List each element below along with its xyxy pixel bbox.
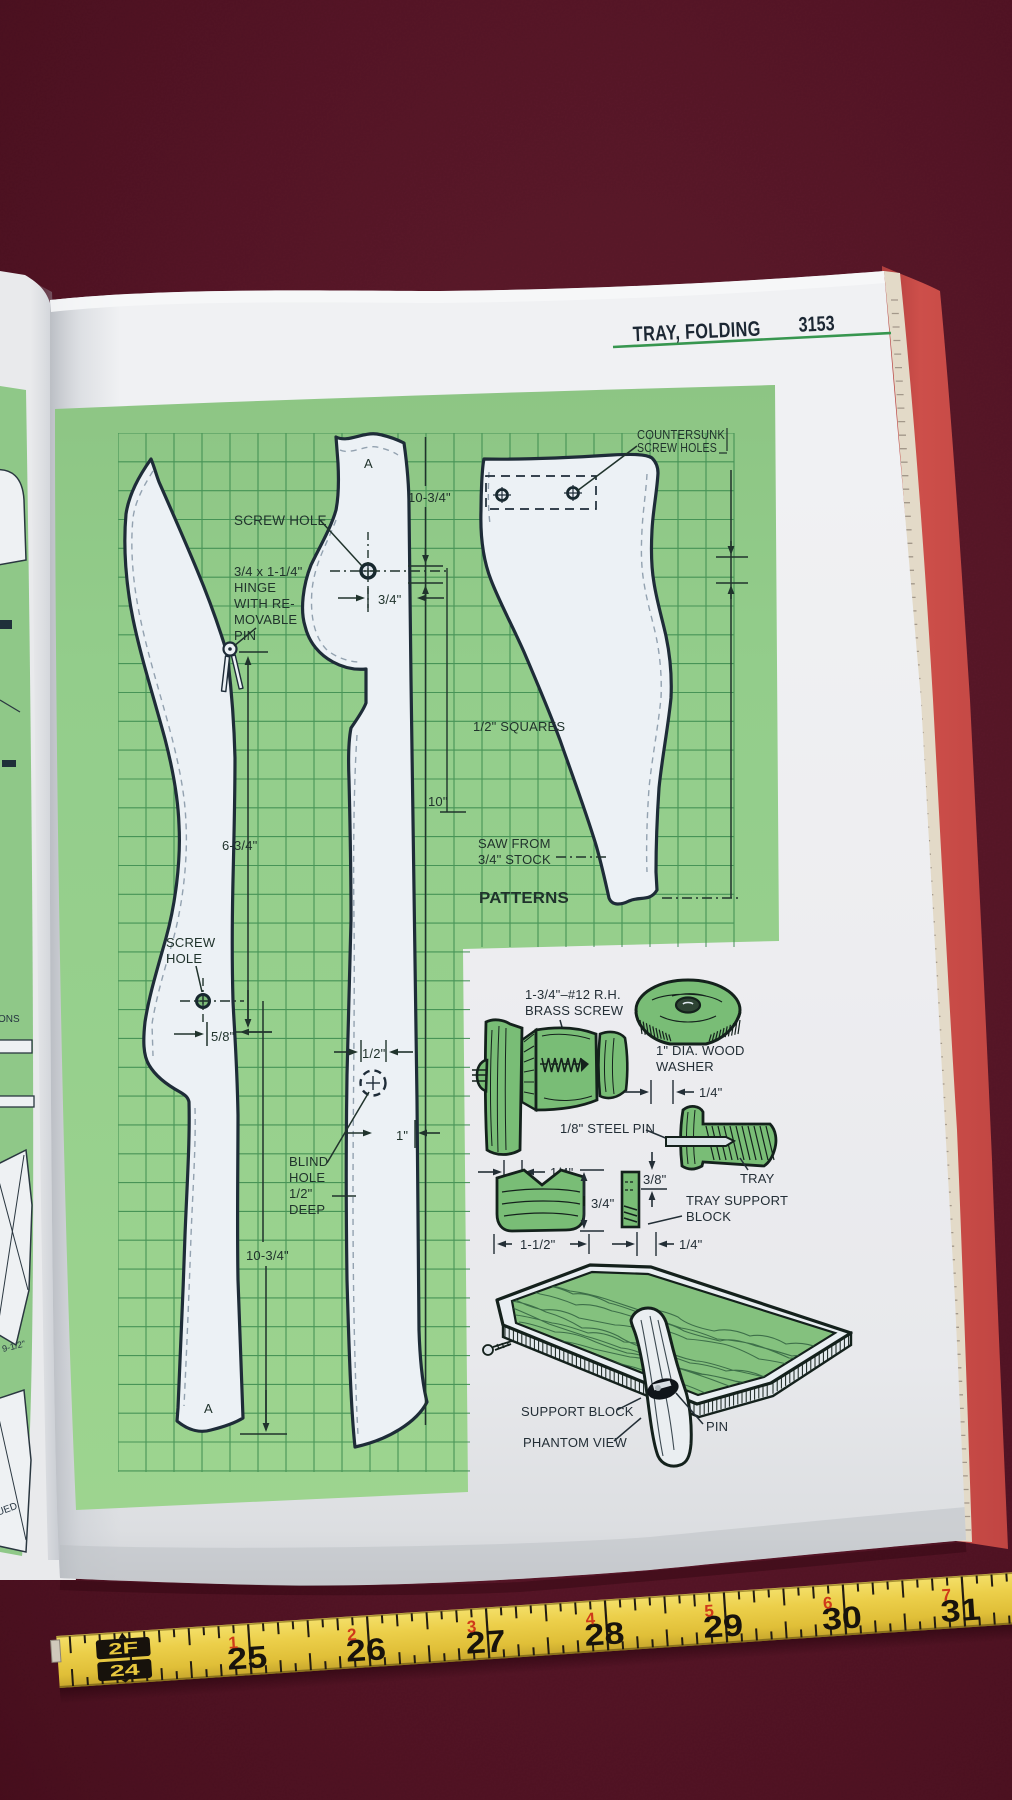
svg-text:A: A [364, 456, 373, 471]
svg-text:4: 4 [585, 1609, 596, 1629]
svg-text:COUNTERSUNK: COUNTERSUNK [637, 428, 725, 442]
svg-text:3/4": 3/4" [378, 592, 402, 607]
svg-text:PIN: PIN [706, 1419, 728, 1434]
svg-text:HOLE: HOLE [289, 1170, 325, 1185]
svg-text:HOLE: HOLE [166, 951, 202, 966]
svg-text:5/8": 5/8" [211, 1029, 235, 1044]
svg-text:1" DIA. WOOD: 1" DIA. WOOD [656, 1043, 745, 1058]
svg-text:3/4" STOCK: 3/4" STOCK [478, 852, 551, 867]
svg-text:6: 6 [822, 1593, 833, 1613]
svg-text:WASHER: WASHER [656, 1059, 714, 1074]
svg-text:BRASS SCREW: BRASS SCREW [525, 1003, 624, 1018]
svg-text:1/2": 1/2" [362, 1046, 386, 1061]
svg-text:MOVABLE: MOVABLE [234, 612, 297, 627]
svg-text:ONS: ONS [0, 1014, 20, 1025]
svg-text:1/4": 1/4" [679, 1237, 703, 1252]
svg-text:WITH RE-: WITH RE- [234, 596, 295, 611]
svg-text:1/2" SQUARES: 1/2" SQUARES [473, 719, 565, 734]
svg-text:1: 1 [228, 1633, 239, 1653]
svg-text:BLIND: BLIND [289, 1154, 328, 1169]
svg-text:3/4 x 1-1/4": 3/4 x 1-1/4" [234, 564, 303, 579]
svg-text:3/8": 3/8" [643, 1172, 667, 1187]
svg-text:1-1/2": 1-1/2" [520, 1237, 556, 1252]
svg-text:TRAY SUPPORT: TRAY SUPPORT [686, 1193, 788, 1208]
svg-text:SCREW: SCREW [166, 935, 216, 950]
svg-text:1-3/4"–#12 R.H.: 1-3/4"–#12 R.H. [525, 987, 621, 1002]
svg-text:1": 1" [396, 1128, 408, 1143]
svg-text:PATTERNS: PATTERNS [479, 890, 569, 907]
svg-text:SAW FROM: SAW FROM [478, 836, 551, 851]
svg-text:PHANTOM VIEW: PHANTOM VIEW [523, 1435, 628, 1450]
svg-text:PIN: PIN [234, 628, 256, 643]
svg-text:3153: 3153 [798, 312, 835, 337]
svg-text:6-3/4": 6-3/4" [222, 838, 258, 853]
svg-text:2F: 2F [108, 1640, 139, 1659]
svg-text:1/2": 1/2" [289, 1186, 313, 1201]
svg-text:10": 10" [428, 794, 448, 809]
svg-text:SUPPORT BLOCK: SUPPORT BLOCK [521, 1404, 634, 1419]
svg-text:3: 3 [466, 1617, 477, 1637]
svg-text:DEEP: DEEP [289, 1202, 325, 1217]
svg-text:5: 5 [704, 1601, 715, 1621]
svg-text:3/4": 3/4" [591, 1196, 615, 1211]
svg-text:1/4": 1/4" [699, 1085, 723, 1100]
svg-text:2: 2 [346, 1625, 357, 1645]
svg-text:TRAY: TRAY [740, 1171, 775, 1186]
svg-text:7: 7 [941, 1585, 952, 1605]
svg-text:1/8" STEEL PIN: 1/8" STEEL PIN [560, 1121, 655, 1136]
svg-text:BLOCK: BLOCK [686, 1209, 731, 1224]
svg-text:10-3/4": 10-3/4" [408, 490, 451, 505]
svg-text:SCREW HOLES: SCREW HOLES [637, 441, 717, 455]
svg-text:10-3/4": 10-3/4" [246, 1248, 289, 1263]
svg-text:24: 24 [109, 1662, 140, 1681]
svg-text:A: A [204, 1401, 213, 1416]
svg-text:SCREW HOLE: SCREW HOLE [234, 513, 327, 528]
svg-text:HINGE: HINGE [234, 580, 276, 595]
